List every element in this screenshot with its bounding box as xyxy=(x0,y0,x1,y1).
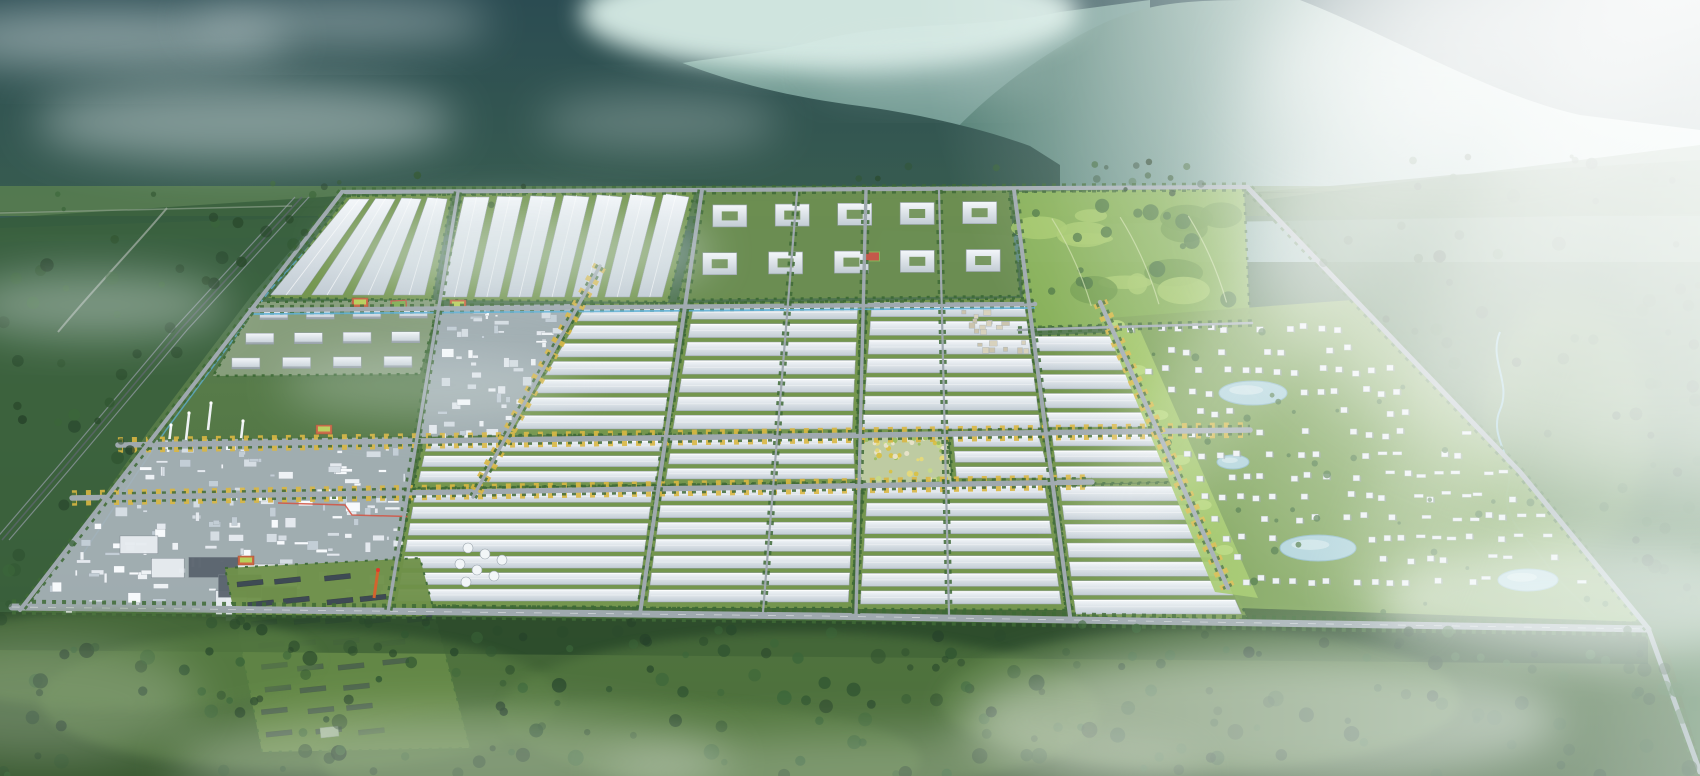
sun-radial xyxy=(0,0,1700,776)
scene-canvas xyxy=(0,0,1700,776)
aerial-masterplan-render xyxy=(0,0,1700,776)
sun-glare xyxy=(0,0,1700,776)
